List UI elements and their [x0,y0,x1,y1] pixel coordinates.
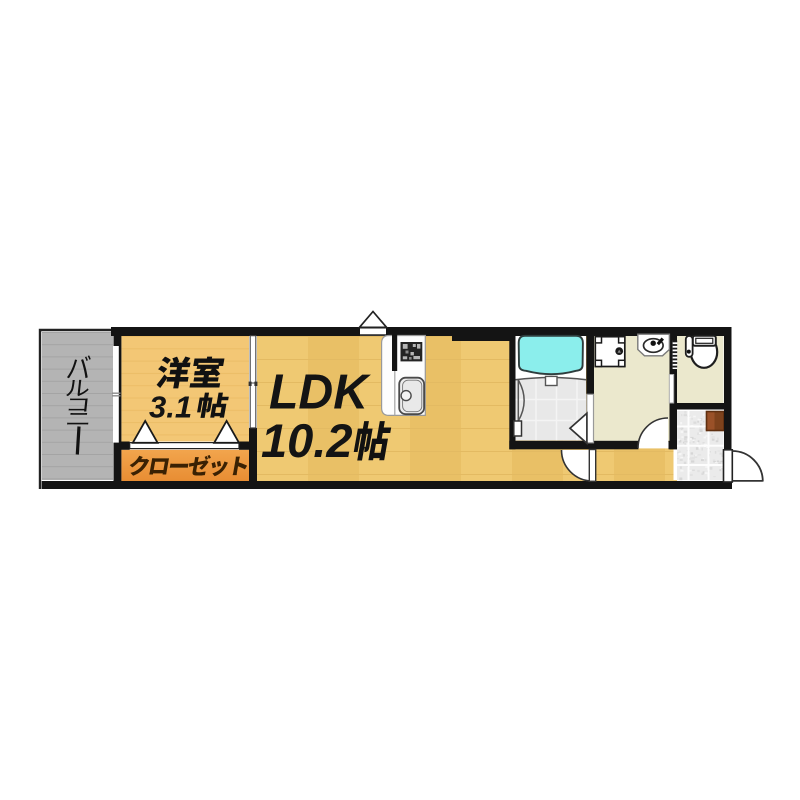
svg-text:10.2: 10.2 [261,414,352,467]
svg-text:LDK: LDK [269,366,372,420]
svg-text:3.1: 3.1 [149,390,192,425]
